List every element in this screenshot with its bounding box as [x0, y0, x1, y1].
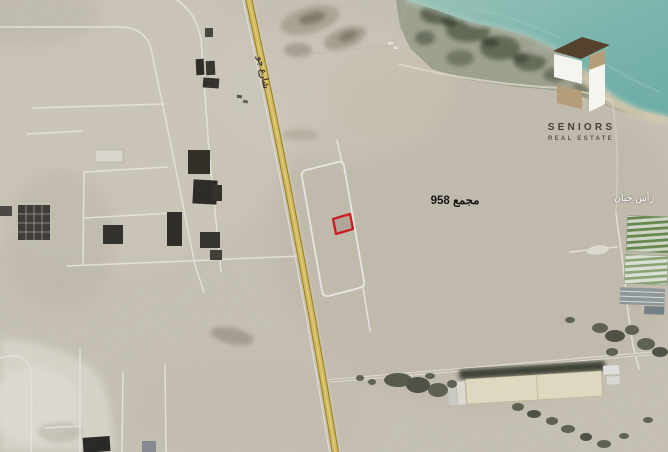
district-name-label: رأس حيان — [604, 193, 664, 204]
satellite-map: شارع جو مجمع 958 رأس حيان SENIORS REAL E… — [0, 0, 668, 452]
block-number-label: مجمع 958 — [420, 193, 490, 207]
logo-tagline-text: REAL ESTATE — [538, 136, 622, 142]
agency-logo: SENIORS REAL ESTATE — [538, 30, 622, 142]
logo-brand-text: SENIORS — [538, 122, 622, 133]
logo-icon — [545, 30, 615, 116]
